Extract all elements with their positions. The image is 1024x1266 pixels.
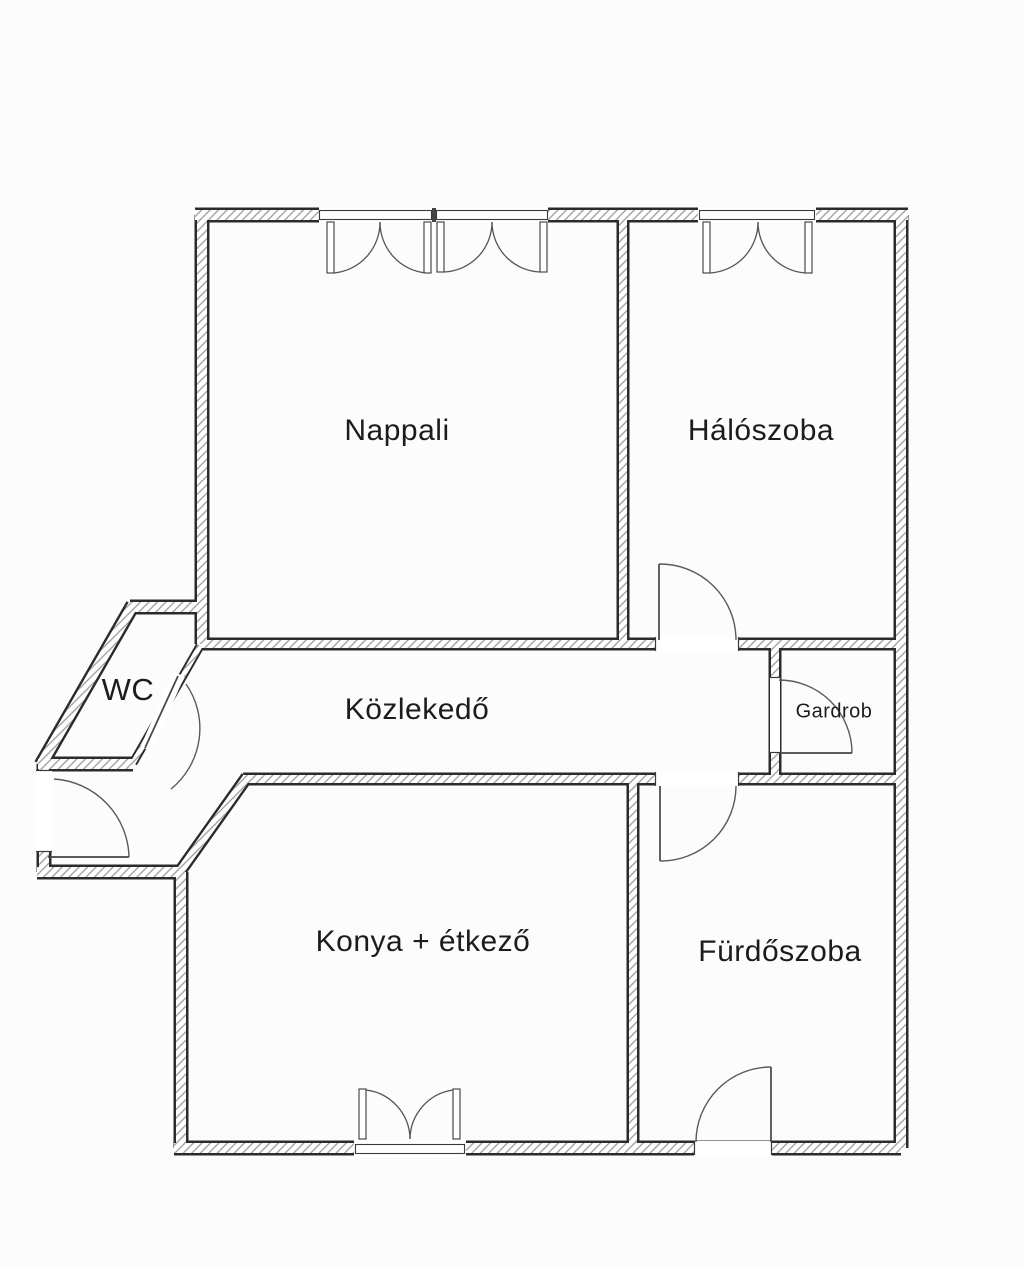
floorplan-drawing [0, 0, 1024, 1266]
room-label-wc: WC [102, 672, 155, 708]
window-leaf [453, 1089, 460, 1139]
window-leaf [359, 1089, 366, 1139]
entrance-door [48, 779, 129, 857]
opening-bedroom-door [655, 637, 739, 651]
bedroom-window-frame [700, 211, 815, 220]
room-label-haloszoba: Hálószoba [688, 414, 834, 448]
floorplan-page: Nappali Hálószoba WC Közlekedő Gardrob K… [0, 0, 1024, 1266]
window-leaf [540, 222, 547, 272]
window-leaf [424, 222, 431, 273]
livingroom-window-2-frame [437, 211, 548, 220]
window-swing-arcs [334, 222, 805, 1139]
window-leaf [703, 222, 710, 273]
bedroom-door [659, 564, 736, 640]
room-label-furdoszoba: Fürdőszoba [698, 935, 861, 969]
window-leaf [437, 222, 444, 272]
opening-entrance-door [36, 770, 52, 852]
room-label-kozlekedo: Közlekedő [345, 693, 490, 727]
window-leaf [805, 222, 812, 273]
window-mullion [432, 208, 436, 222]
room-label-konyha: Konya + étkező [316, 925, 531, 959]
livingroom-window-1-frame [320, 211, 432, 220]
opening-bathroom-ext-door [694, 1141, 772, 1156]
room-label-gardrob: Gardrob [796, 701, 873, 724]
window-leaf [327, 222, 334, 273]
kitchen-window-frame [356, 1145, 465, 1154]
opening-wardrobe-door [770, 677, 780, 753]
bathroom-door [660, 786, 736, 861]
window-symbols [320, 208, 815, 1154]
room-label-nappali: Nappali [344, 414, 449, 448]
opening-bathroom-door [655, 772, 739, 786]
bathroom-lower-door [696, 1067, 771, 1142]
